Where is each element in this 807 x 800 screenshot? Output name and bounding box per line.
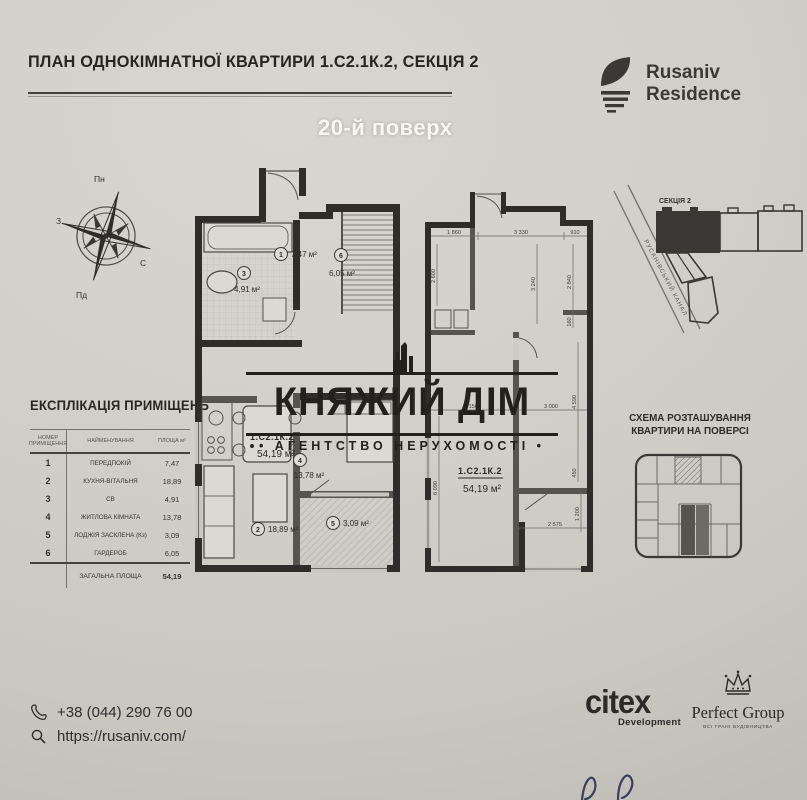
row-area: 18,89 — [154, 477, 190, 486]
perfect-group-wordmark: Perfect Group — [676, 703, 800, 723]
dim-right-bottom: 1 200 — [575, 507, 581, 521]
highlighted-apartment — [681, 505, 695, 555]
room1-number: 1 — [279, 252, 283, 259]
dim-right-lower: 450 — [572, 468, 578, 477]
dim-right-upper: 2 840 — [567, 275, 573, 289]
table-header-row: НОМЕР ПРИМІЩЕННЯ НАЙМЕНУВАННЯ ПЛОЩА м² — [30, 430, 190, 454]
total-area: 54,19 — [154, 572, 190, 581]
table-total-row: ЗАГАЛЬНА ПЛОЩА 54,19 — [30, 562, 190, 588]
citex-logo: citex Development — [585, 683, 681, 728]
room3-area: 4,91 м² — [234, 285, 260, 294]
row-num: 5 — [30, 526, 67, 544]
apartment-code: 1.С2.1К.2 — [458, 466, 502, 476]
row-area: 3,09 — [154, 531, 190, 540]
compass-east-label: С — [140, 258, 146, 268]
room6-area: 6,05 м² — [329, 269, 355, 278]
table-row: 3 СВ 4,91 — [30, 490, 190, 508]
page-title: ПЛАН ОДНОКІМНАТНОЇ КВАРТИРИ 1.С2.1К.2, С… — [28, 52, 450, 72]
dim-right-mid: 4 590 — [572, 395, 578, 409]
room2-number: 2 — [256, 527, 260, 534]
row-num: 3 — [30, 490, 67, 508]
table-row: 6 ГАРДЕРОБ 6,05 — [30, 544, 190, 562]
watermark-rule-bottom — [246, 433, 558, 436]
perfect-group-subtitle: ВСІ ГРАНІ БУДІВНИЦТВА — [676, 725, 800, 730]
contact-block: +38 (044) 290 76 00 https://rusaniv.com/ — [30, 700, 193, 748]
room2-area: 18,89 м² — [268, 525, 299, 534]
apartment-total-area: 54,19 м² — [463, 484, 502, 495]
explication-table: ЕКСПЛІКАЦІЯ ПРИМІЩЕНЬ НОМЕР ПРИМІЩЕННЯ Н… — [30, 398, 190, 588]
room6-number: 6 — [339, 253, 343, 260]
row-num: 2 — [30, 472, 67, 490]
row-name: ЖИТЛОВА КІМНАТА — [67, 514, 154, 521]
room3-number: 3 — [242, 271, 246, 278]
site-plan: РУСАНІВСЬКИЙ КАНАЛ СЕКЦІЯ 2 — [612, 183, 807, 333]
scanned-floor-plan-page: ПЛАН ОДНОКІМНАТНОЇ КВАРТИРИ 1.С2.1К.2, С… — [0, 0, 807, 800]
dim-top-left: 1 860 — [447, 230, 461, 236]
perfect-group-logo: Perfect Group ВСІ ГРАНІ БУДІВНИЦТВА — [676, 670, 800, 730]
rusaniv-residence-logo: Rusaniv Residence — [598, 56, 741, 114]
crown-icon — [720, 670, 756, 696]
title-underline — [28, 92, 452, 94]
phone-icon — [30, 704, 47, 721]
room4-area: 13,78 м² — [294, 471, 325, 480]
compass-south-label: Пд — [76, 290, 87, 300]
phone-number: +38 (044) 290 76 00 — [57, 704, 193, 721]
dim-left-lower: 6 090 — [433, 481, 439, 495]
dim-bottom: 2 575 — [548, 522, 562, 528]
row-area: 7,47 — [154, 459, 190, 468]
floor-scheme-title: СХЕМА РОЗТАШУВАННЯ КВАРТИРИ НА ПОВЕРСІ — [624, 412, 756, 438]
row-area: 13,78 — [154, 513, 190, 522]
row-name: ПЕРЕДПОКІЙ — [67, 460, 154, 467]
building-icon — [392, 340, 414, 373]
header-number: НОМЕР ПРИМІЩЕННЯ — [30, 430, 67, 452]
table-row: 2 КУХНЯ-ВІТАЛЬНЯ 18,89 — [30, 472, 190, 490]
website-url: https://rusaniv.com/ — [57, 728, 186, 745]
logo-name-line1: Rusaniv — [646, 62, 741, 84]
row-num: 1 — [30, 454, 67, 472]
citex-wordmark: citex — [585, 683, 674, 721]
row-name: СВ — [67, 496, 154, 503]
handwritten-signature — [572, 770, 712, 800]
row-name: КУХНЯ-ВІТАЛЬНЯ — [67, 478, 154, 485]
magnifier-icon — [30, 728, 47, 745]
watermark-brand: КНЯЖИЙ ДІМ — [254, 374, 550, 430]
compass-rose: Пн С Пд З — [56, 166, 166, 306]
row-num: 6 — [30, 544, 67, 562]
watermark-tagline: • АГЕНТСТВО НЕРУХОМОСТІ • — [246, 439, 558, 453]
header-area: ПЛОЩА м² — [154, 438, 190, 444]
table-row: 5 ЛОДЖІЯ ЗАСКЛЕНА (Кз) 3,09 — [30, 526, 190, 544]
floor-scheme-title-line2: КВАРТИРИ НА ПОВЕРСІ — [624, 425, 756, 438]
row-area: 4,91 — [154, 495, 190, 504]
floor-scheme-title-line1: СХЕМА РОЗТАШУВАННЯ — [624, 412, 756, 425]
room5-number: 5 — [331, 521, 335, 528]
title-underline-shadow — [28, 96, 452, 97]
header-name: НАЙМЕНУВАННЯ — [67, 438, 154, 444]
dim-right-step: 160 — [567, 317, 573, 326]
dim-top-right: 910 — [570, 230, 579, 236]
sail-logo-icon — [598, 56, 636, 114]
row-num: 4 — [30, 508, 67, 526]
room5-area: 3,09 м² — [343, 519, 369, 528]
dim-mid-vert: 3 240 — [531, 277, 537, 291]
table-row: 4 ЖИТЛОВА КІМНАТА 13,78 — [30, 508, 190, 526]
row-area: 6,05 — [154, 549, 190, 558]
floor-label: 20-й поверх — [318, 115, 453, 141]
compass-west-label: З — [56, 216, 61, 226]
row-name: ГАРДЕРОБ — [67, 550, 154, 557]
dim-top-mid: 3 330 — [514, 230, 528, 236]
agency-watermark: КНЯЖИЙ ДІМ • АГЕНТСТВО НЕРУХОМОСТІ • — [246, 338, 558, 460]
dim-left-upper: 2 600 — [431, 269, 437, 283]
table-row: 1 ПЕРЕДПОКІЙ 7,47 — [30, 454, 190, 472]
total-label: ЗАГАЛЬНА ПЛОЩА — [67, 573, 154, 580]
floor-scheme-plan — [633, 452, 748, 562]
row-name: ЛОДЖІЯ ЗАСКЛЕНА (Кз) — [67, 532, 154, 539]
logo-name-line2: Residence — [646, 84, 741, 106]
section-label: СЕКЦІЯ 2 — [659, 198, 691, 205]
compass-north-label: Пн — [94, 174, 105, 184]
room1-area: 7,47 м² — [291, 250, 317, 259]
explication-title: ЕКСПЛІКАЦІЯ ПРИМІЩЕНЬ — [30, 398, 185, 413]
